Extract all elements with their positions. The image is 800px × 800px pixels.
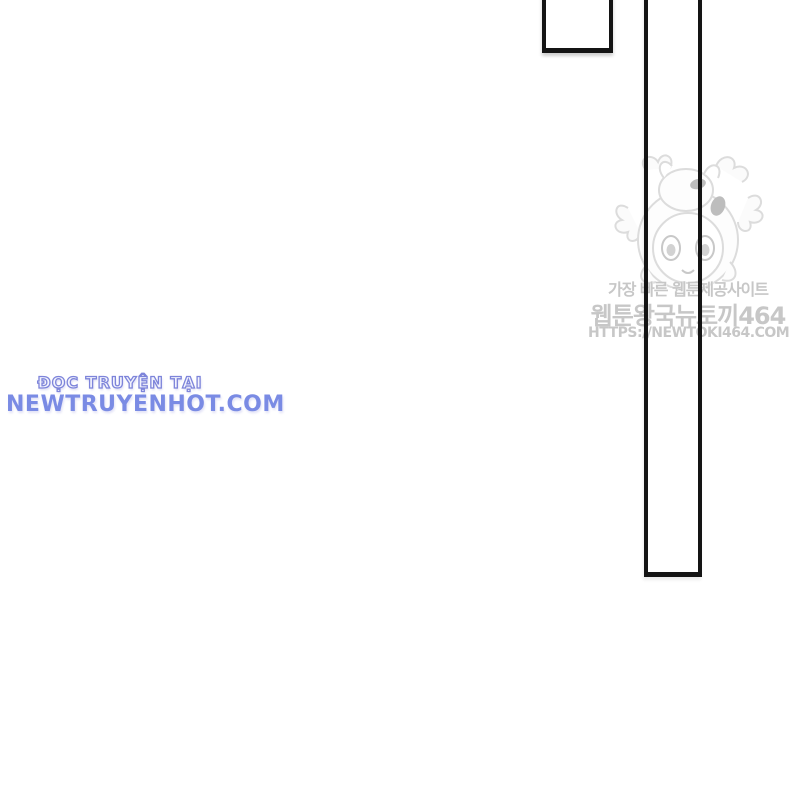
translator-credit: ĐỌC TRUYỆN TẠI NEWTRUYENHOT.COM bbox=[6, 374, 234, 418]
comic-page: 가장 빠른 웹툰제공사이트 웹툰왕국뉴토끼464 HTTPS://NEWTOKI… bbox=[0, 0, 800, 800]
translator-credit-prefix: ĐỌC TRUYỆN TẠI bbox=[6, 374, 234, 392]
translator-credit-site: NEWTRUYENHOT.COM bbox=[6, 392, 234, 417]
panel-border-top-small bbox=[542, 0, 613, 53]
panel-border-tall-vertical bbox=[644, 0, 702, 577]
